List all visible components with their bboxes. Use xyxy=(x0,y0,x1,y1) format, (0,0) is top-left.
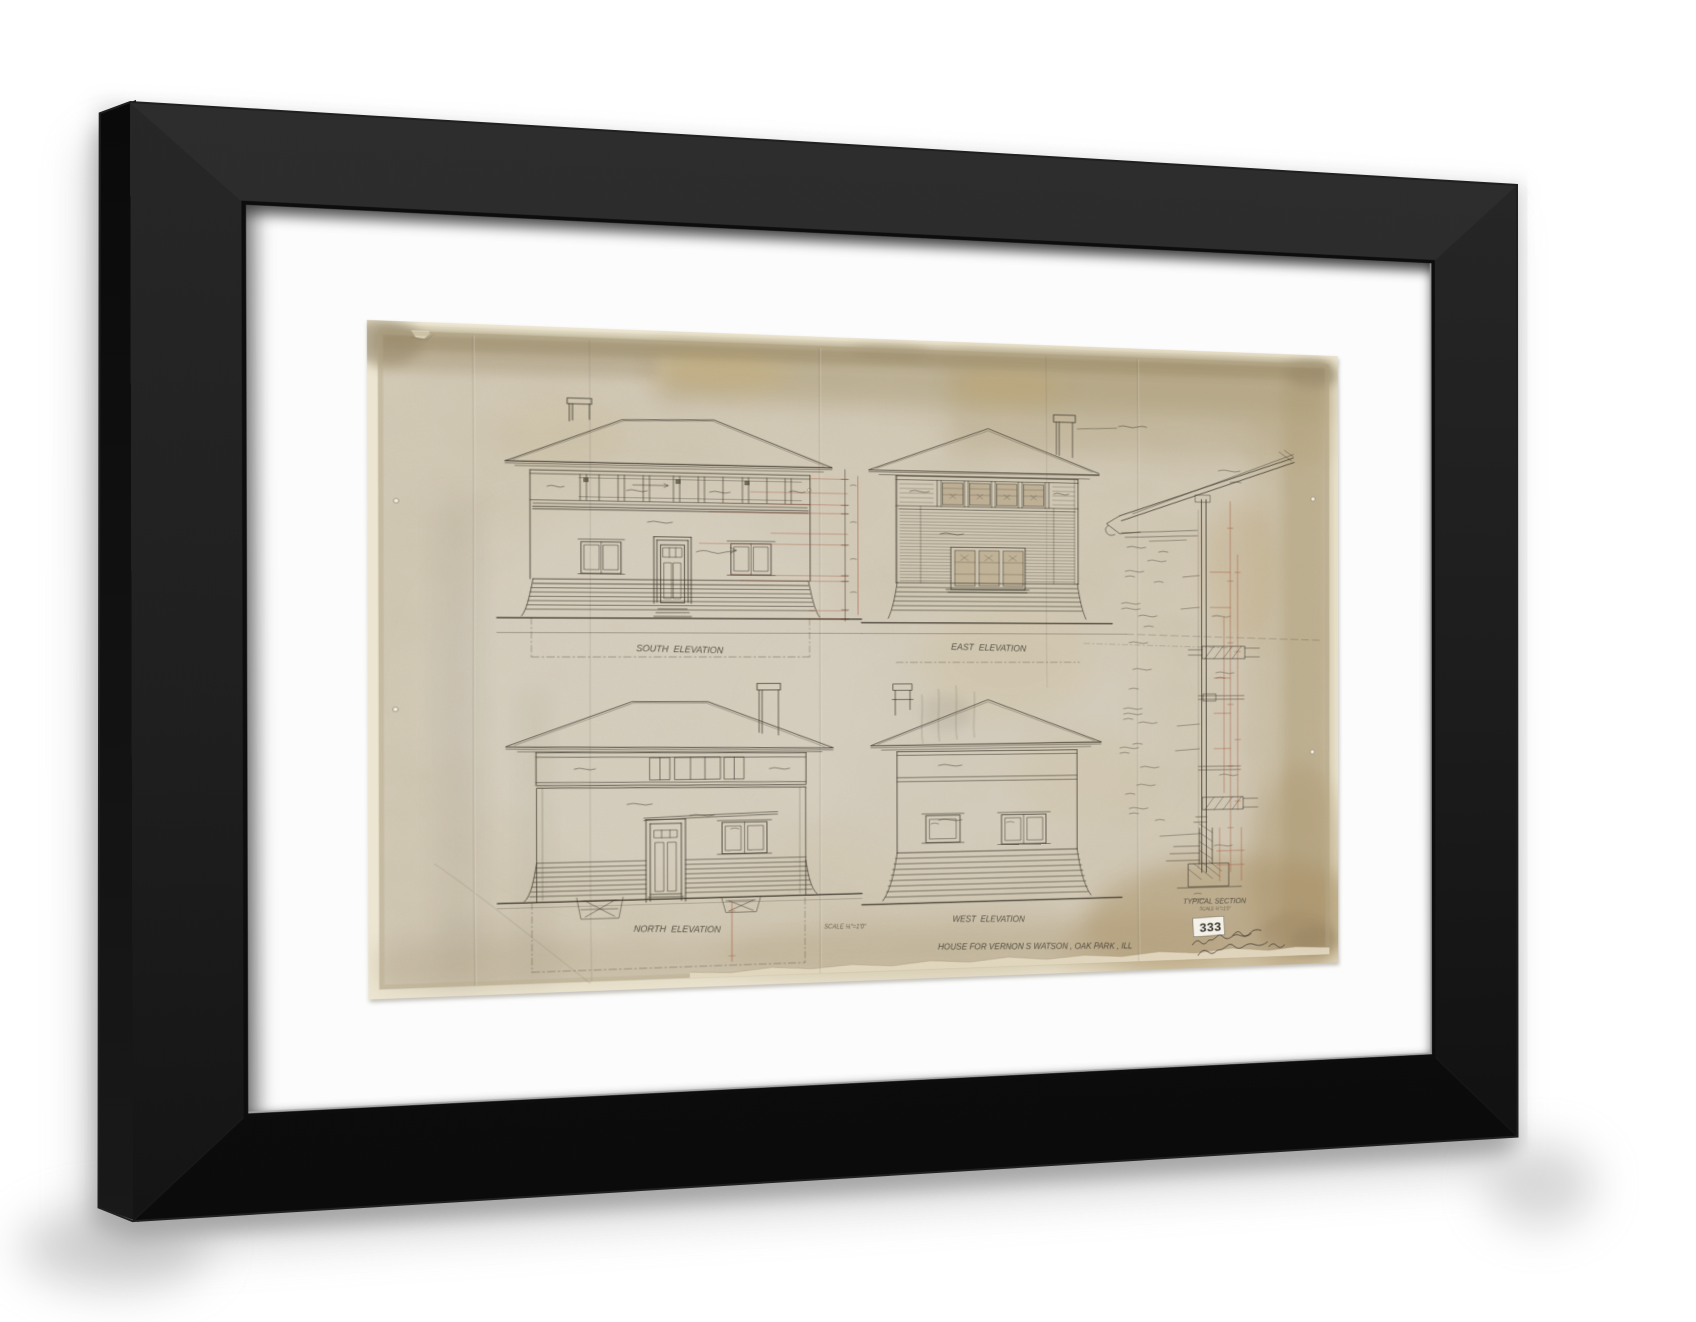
svg-text:333: 333 xyxy=(1199,921,1221,935)
svg-text:WEST ELEVATION: WEST ELEVATION xyxy=(952,914,1025,924)
svg-text:SCALE ¼"=1'0": SCALE ¼"=1'0" xyxy=(824,923,867,931)
svg-text:NORTH ELEVATION: NORTH ELEVATION xyxy=(634,924,721,935)
svg-text:TYPICAL SECTION: TYPICAL SECTION xyxy=(1183,897,1246,906)
svg-text:SCALE ½"=1'0": SCALE ½"=1'0" xyxy=(1200,905,1232,912)
svg-text:HOUSE FOR VERNON S WATSON , OA: HOUSE FOR VERNON S WATSON , OAK PARK , I… xyxy=(938,941,1133,952)
svg-text:EAST ELEVATION: EAST ELEVATION xyxy=(951,642,1026,654)
svg-text:SOUTH ELEVATION: SOUTH ELEVATION xyxy=(636,644,723,656)
